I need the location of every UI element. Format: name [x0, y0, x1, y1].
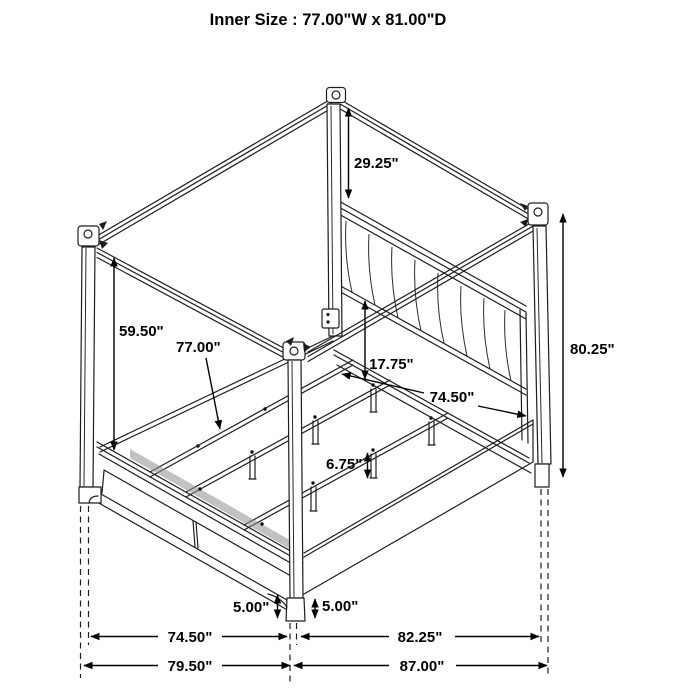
corner-cap-back	[327, 88, 346, 103]
dim-line-width-between-posts-b	[478, 406, 526, 416]
front-post-body	[288, 360, 303, 598]
canopy-corner-caps	[78, 88, 548, 361]
bracket-bolt-dot	[326, 313, 329, 316]
footboard-bolt-dot	[198, 487, 201, 490]
dimension-diagram: Inner Size : 77.00"W x 81.00"D 29.25" 59…	[0, 0, 700, 700]
footboard-bolt-dot	[260, 522, 263, 525]
label-slat-leg-height: 6.75"	[326, 456, 362, 473]
label-side-inner-span: 82.25"	[398, 629, 443, 646]
front-post-foot	[286, 598, 305, 621]
right-post-body	[533, 226, 551, 464]
bracket-bolt-dot	[326, 320, 329, 323]
label-rail-to-headboard: 17.75"	[369, 356, 414, 373]
label-side-outer-span: 87.00"	[400, 658, 445, 675]
extension-lines	[81, 489, 549, 682]
label-inner-width: 77.00"	[176, 339, 221, 356]
label-front-inner-span: 74.50"	[168, 629, 213, 646]
label-width-between-posts: 74.50"	[430, 389, 475, 406]
right-post	[533, 226, 551, 487]
corner-cap-left	[78, 226, 99, 246]
label-floor-to-canopy: 59.50"	[119, 323, 164, 340]
canopy-bed-drawing: Inner Size : 77.00"W x 81.00"D 29.25" 59…	[0, 0, 700, 700]
page-title: Inner Size : 77.00"W x 81.00"D	[210, 11, 447, 29]
label-footboard-clearance: 5.00"	[233, 599, 269, 616]
label-overall-height: 80.25"	[570, 341, 615, 358]
canopy-frame-front	[97, 221, 534, 362]
back-post-body	[327, 104, 342, 336]
left-post	[79, 247, 101, 503]
back-post	[322, 104, 342, 336]
dim-leader-inner-width	[206, 358, 220, 429]
canopy-frame	[97, 99, 531, 246]
footboard	[97, 442, 303, 618]
label-post-above-headboard: 29.25"	[354, 155, 399, 172]
front-post	[268, 360, 305, 621]
label-siderail-clearance: 5.00"	[322, 598, 358, 615]
corner-cap-right	[528, 203, 548, 225]
slat-rail-1	[150, 360, 353, 477]
footboard-deck-shading	[130, 449, 302, 556]
corner-cap-front	[283, 342, 305, 360]
label-front-outer-span: 79.50"	[168, 658, 213, 675]
right-post-foot	[535, 464, 549, 487]
canopy-rail-back-left	[97, 99, 331, 246]
back-post-bracket	[322, 309, 339, 328]
left-post-body	[80, 247, 95, 487]
